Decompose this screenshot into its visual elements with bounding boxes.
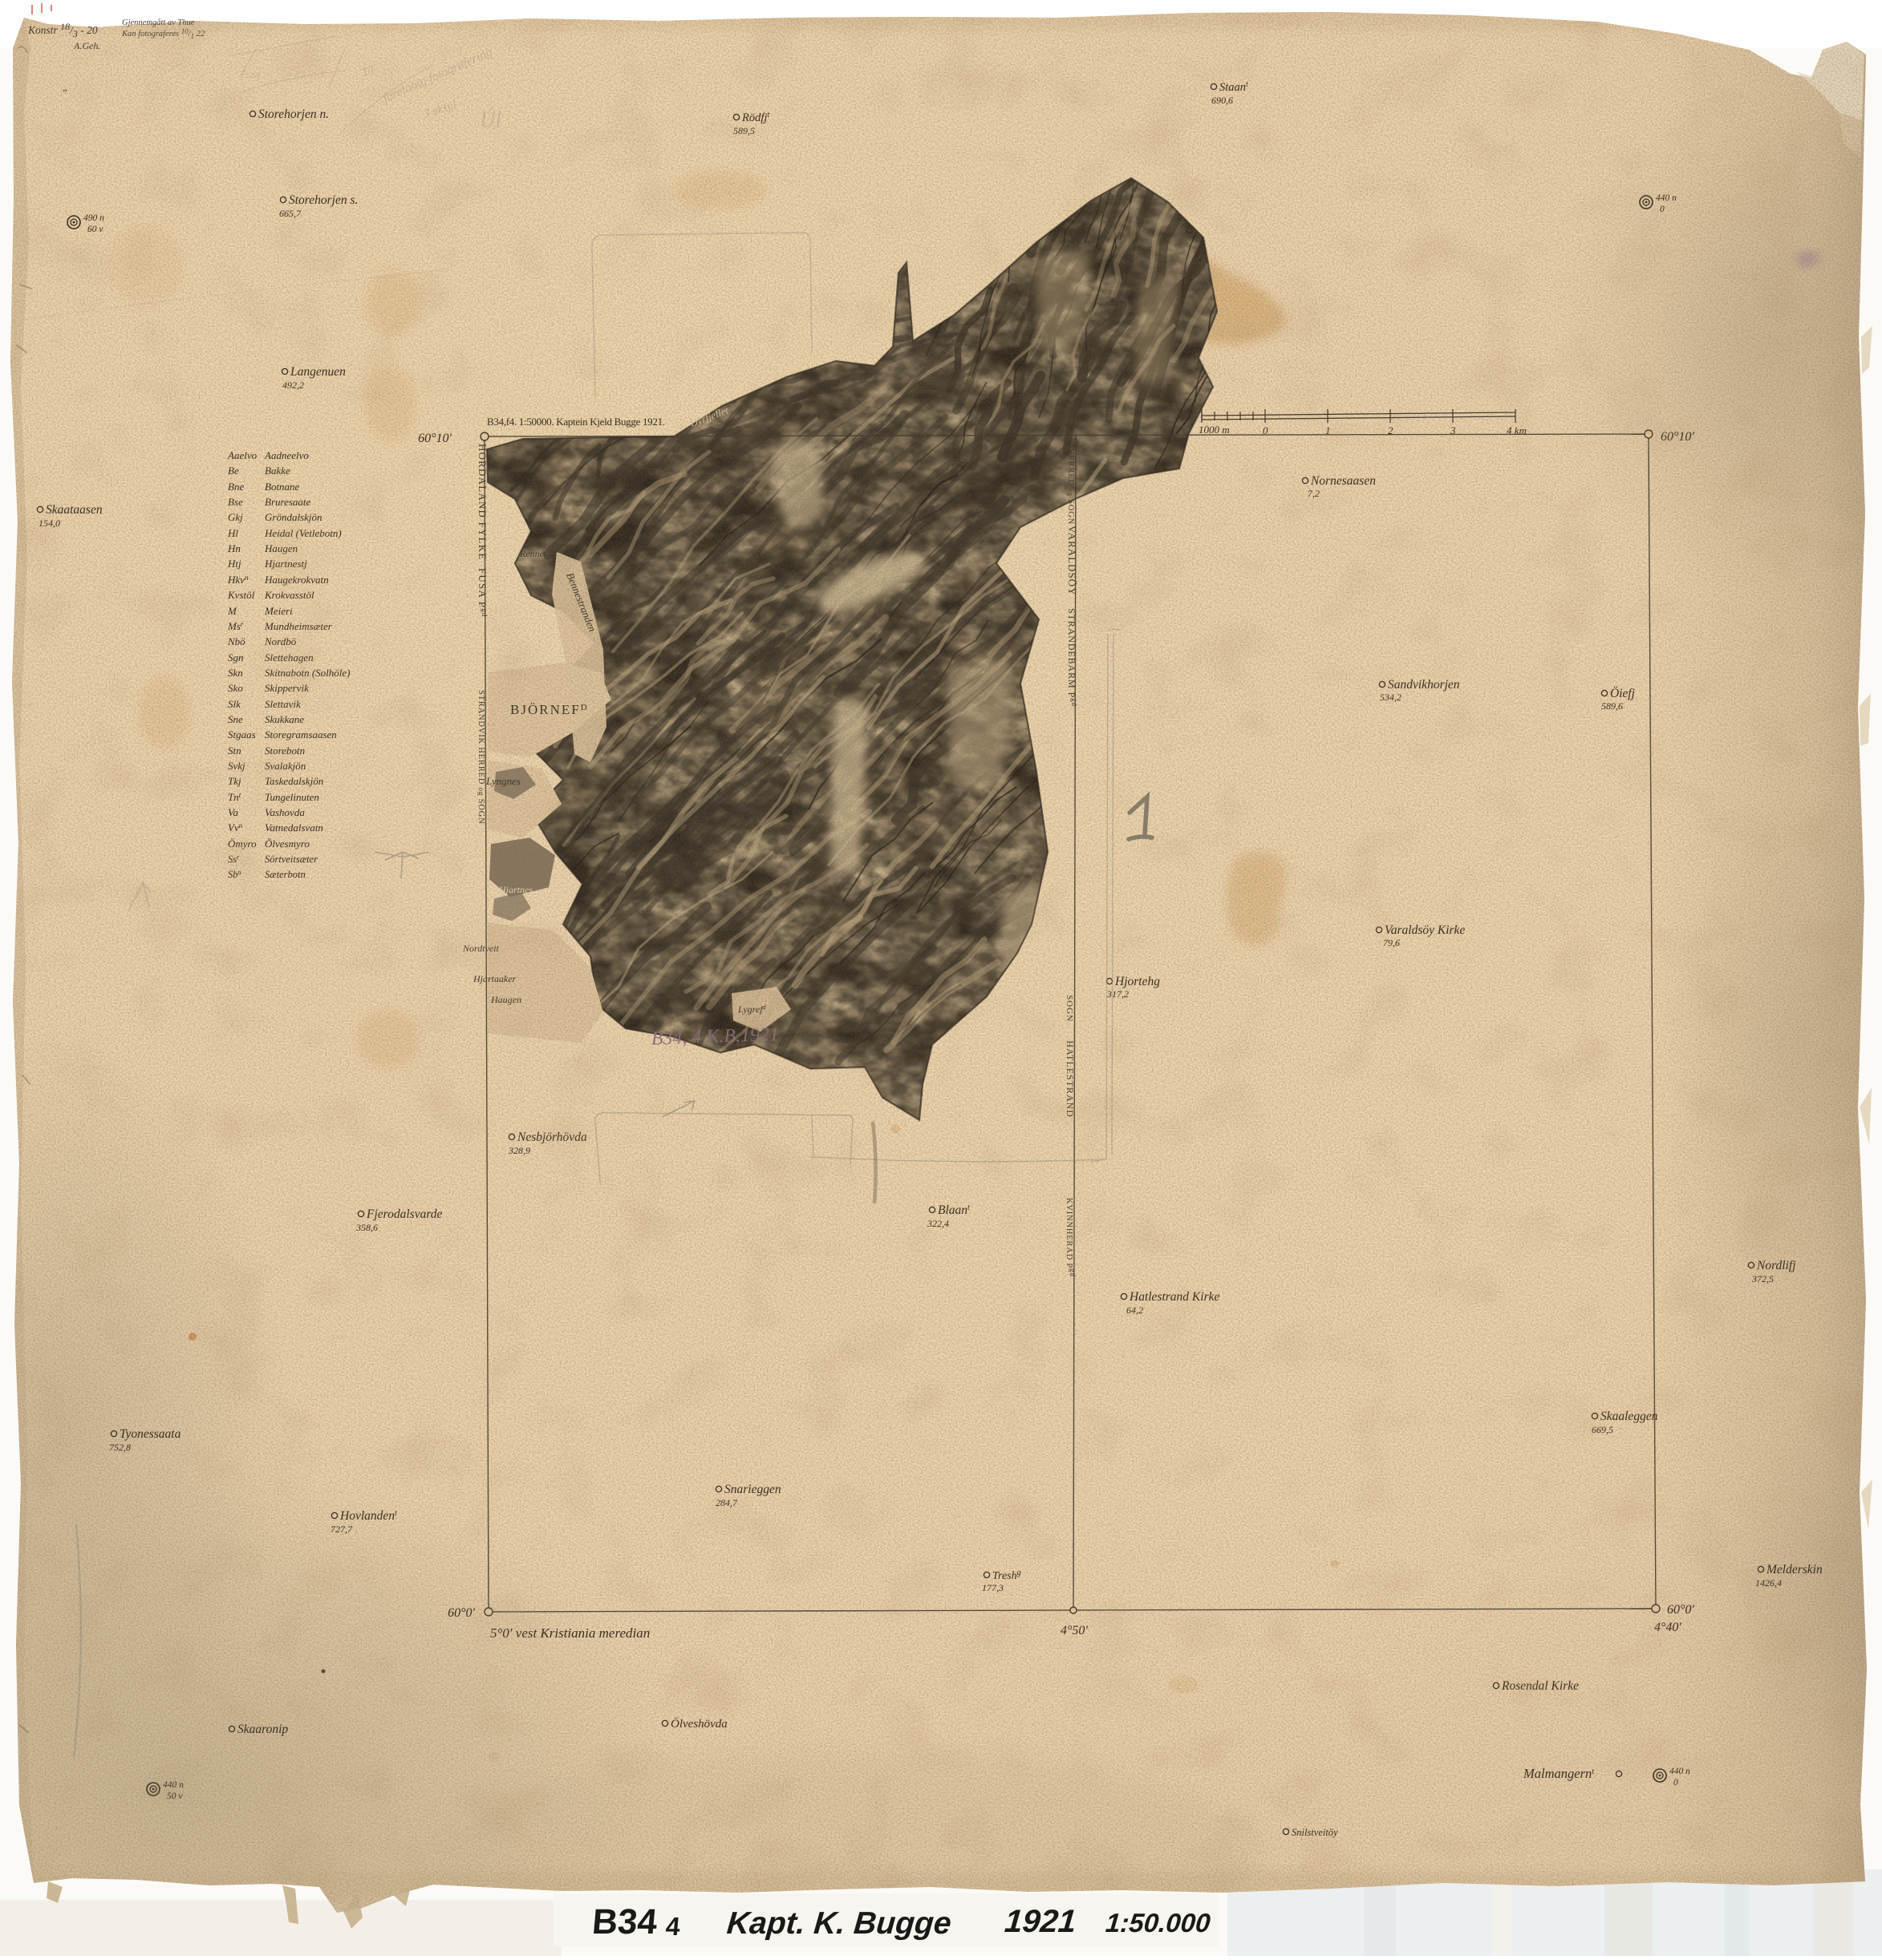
svg-text:4: 4 bbox=[664, 1912, 681, 1941]
svg-text:1:50.000: 1:50.000 bbox=[1105, 1909, 1212, 1938]
svg-text:B34: B34 bbox=[590, 1902, 659, 1942]
svg-text:1921: 1921 bbox=[1004, 1904, 1078, 1939]
svg-text:Kapt. K. Bugge: Kapt. K. Bugge bbox=[725, 1906, 952, 1941]
